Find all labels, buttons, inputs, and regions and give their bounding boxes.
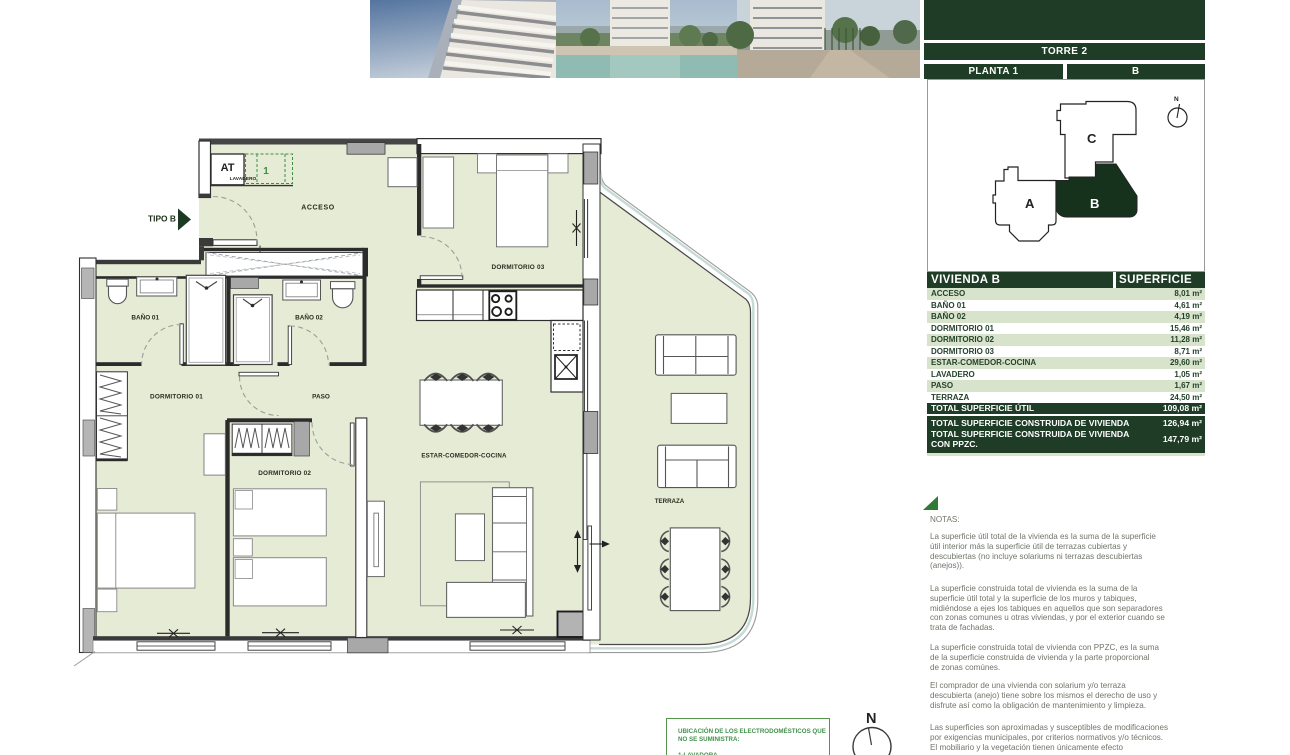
svg-text:LAVADERO: LAVADERO: [230, 176, 257, 182]
svg-text:B: B: [1090, 196, 1099, 211]
svg-text:DORMITORIO 01: DORMITORIO 01: [150, 393, 203, 400]
svg-text:TERRAZA: TERRAZA: [655, 498, 685, 505]
svg-text:N: N: [1174, 96, 1179, 103]
svg-text:ESTAR-COMEDOR-COCINA: ESTAR-COMEDOR-COCINA: [421, 453, 507, 460]
svg-text:TIPO B: TIPO B: [148, 214, 176, 224]
svg-text:DORMITORIO 02: DORMITORIO 02: [258, 470, 311, 477]
svg-text:PASO: PASO: [312, 393, 330, 400]
svg-text:N: N: [866, 711, 876, 727]
svg-text:AT: AT: [221, 162, 235, 174]
svg-text:A: A: [1025, 196, 1035, 211]
svg-text:BAÑO 02: BAÑO 02: [295, 312, 323, 321]
svg-text:ACCESO: ACCESO: [301, 205, 335, 212]
svg-text:DORMITORIO 03: DORMITORIO 03: [492, 264, 545, 271]
svg-text:BAÑO 01: BAÑO 01: [131, 312, 159, 321]
svg-text:C: C: [1087, 131, 1097, 146]
svg-text:1: 1: [263, 166, 269, 177]
